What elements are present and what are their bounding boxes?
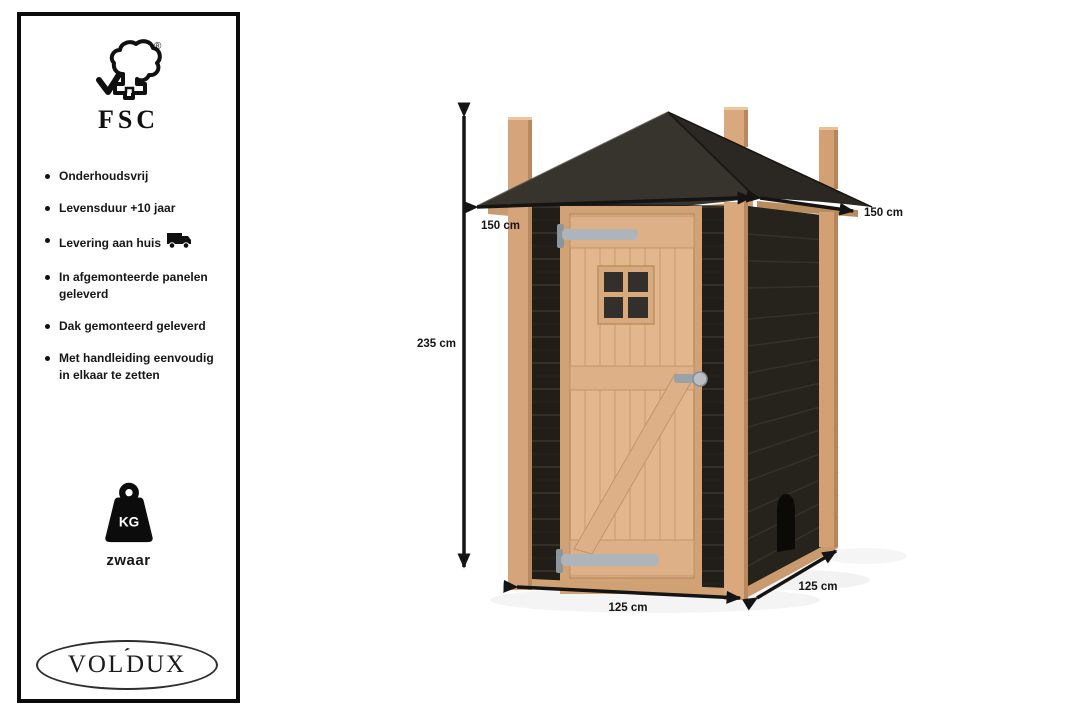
fsc-logo: ® FSC [21,38,236,135]
brand-right: DUX [126,651,186,679]
brand-left: VOL [68,651,125,679]
dim-base-side-label: 125 cm [798,581,837,593]
bullet-dot [45,238,50,243]
feature-list: Onderhoudsvrij Levensduur +10 jaar Lever… [45,168,231,399]
fsc-wordmark: FSC [21,105,236,135]
feature-item: Levering aan huis [45,232,231,254]
registered-mark: ® [154,41,162,52]
feature-item: In afgemonteerde panelen geleverd [45,269,231,303]
bullet-dot [45,174,50,179]
shed-front-wall [532,203,748,598]
truck-icon [167,232,193,254]
dim-base-front-label: 125 cm [608,602,647,614]
feature-text: Levensduur +10 jaar [59,200,227,217]
bullet-dot [45,206,50,211]
feature-text: In afgemonteerde panelen geleverd [59,269,227,303]
bullet-dot [45,356,50,361]
bullet-dot [45,275,50,280]
weight-unit: KG [118,515,138,530]
feature-item: Levensduur +10 jaar [45,200,231,217]
feature-item: Onderhoudsvrij [45,168,231,185]
fsc-tree-icon: ® [93,38,165,102]
feature-text: Onderhoudsvrij [59,168,227,185]
feature-item: Dak gemonteerd geleverd [45,318,231,335]
shed-side-wall [748,206,838,597]
kg-weight-icon: KG [97,482,161,546]
door-window [598,266,654,324]
side-wall-opening [777,494,795,552]
info-panel: ® FSC Onderhoudsvrij Levensduur +10 jaar… [17,12,240,703]
shed-roof [477,112,872,210]
dim-roof-side-label: 150 cm [864,207,903,219]
dim-roof-front-label: 150 cm [481,220,520,232]
weight-indicator: KG zwaar [21,482,236,569]
weight-label: zwaar [21,552,236,569]
feature-text: Levering aan huis [59,232,227,254]
shed-door [556,214,707,578]
bullet-dot [45,324,50,329]
feature-text: Met handleiding eenvoudig in elkaar te z… [59,350,227,384]
dim-height-label: 235 cm [417,338,456,350]
feature-item: Met handleiding eenvoudig in elkaar te z… [45,350,231,384]
brand-wordmark: VOL´DUX [68,651,186,679]
brand-logo: VOL´DUX [36,640,218,690]
feature-text: Dak gemonteerd geleverd [59,318,227,335]
